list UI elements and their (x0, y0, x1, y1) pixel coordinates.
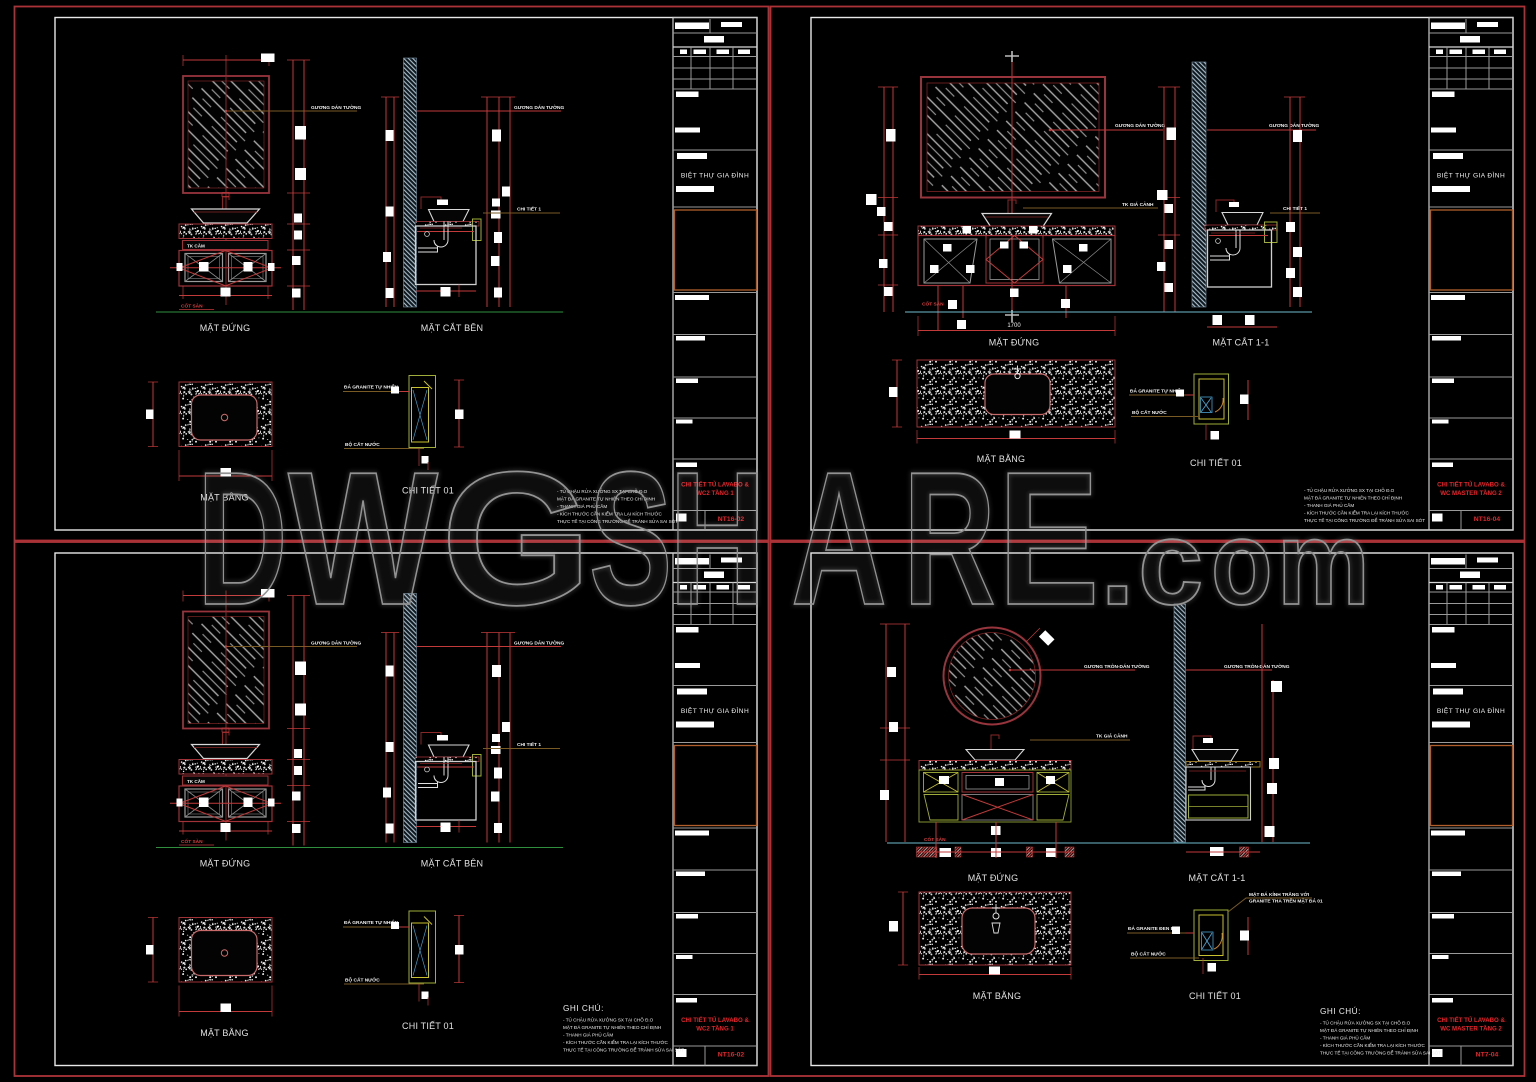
svg-text:- TỦ CHẬU RỬA XƯỞNG SX TẠI CHỖ: - TỦ CHẬU RỬA XƯỞNG SX TẠI CHỖ Đ.O (1304, 487, 1395, 493)
svg-text:NT16-02: NT16-02 (718, 1052, 745, 1059)
svg-text:- THANH GIÁ PHỦ CẮM: - THANH GIÁ PHỦ CẮM (1320, 1034, 1370, 1041)
svg-text:- TỦ CHẬU RỬA XƯỞNG SX TẠI CHỖ: - TỦ CHẬU RỬA XƯỞNG SX TẠI CHỖ Đ.O (563, 1017, 654, 1023)
svg-text:NT16-04: NT16-04 (1474, 516, 1501, 523)
svg-text:- TỦ CHẬU RỬA XƯỞNG SX TẠI CHỖ: - TỦ CHẬU RỬA XƯỞNG SX TẠI CHỖ Đ.O (1320, 1020, 1411, 1026)
svg-text:MẶT BẰNG: MẶT BẰNG (973, 991, 1021, 1001)
svg-text:THỰC TẾ TẠI CÔNG TRƯỜNG ĐỂ TRÁ: THỰC TẾ TẠI CÔNG TRƯỜNG ĐỂ TRÁNH SỬA SAI… (563, 1047, 684, 1053)
svg-text:TK GIÁ CẢNH: TK GIÁ CẢNH (1122, 201, 1154, 208)
svg-text:MẶT ĐÁ GRANITE TỰ NHIÊN THEO C: MẶT ĐÁ GRANITE TỰ NHIÊN THEO CHỈ ĐỊNH (1320, 1026, 1418, 1033)
svg-text:MẶT ĐÁ GRANITE TỰ NHIÊN THEO C: MẶT ĐÁ GRANITE TỰ NHIÊN THEO CHỈ ĐỊNH (563, 1023, 661, 1030)
svg-text:MẶT ĐỨNG: MẶT ĐỨNG (989, 338, 1040, 348)
svg-text:TK GIÁ CẢNH: TK GIÁ CẢNH (1096, 733, 1128, 740)
svg-text:WC MASTER TẦNG 2: WC MASTER TẦNG 2 (1440, 1026, 1502, 1033)
svg-text:MẶT CẮT 1-1: MẶT CẮT 1-1 (1189, 873, 1246, 883)
svg-text:- KÍCH THƯỚC CẦN KIỂM TRA LẠI: - KÍCH THƯỚC CẦN KIỂM TRA LẠI KÍCH THƯỚC (563, 1039, 668, 1045)
svg-text:THỰC TẾ TẠI CÔNG TRƯỜNG ĐỂ TRÁ: THỰC TẾ TẠI CÔNG TRƯỜNG ĐỂ TRÁNH SỬA SAI… (1320, 1050, 1441, 1056)
svg-text:CỐT SÀN: CỐT SÀN (924, 836, 946, 843)
svg-text:CỐT SÀN: CỐT SÀN (922, 301, 944, 308)
svg-text:MẶT CẮT 1-1: MẶT CẮT 1-1 (1213, 338, 1270, 348)
svg-text:CHI TIẾT TỦ LAVABO &: CHI TIẾT TỦ LAVABO & (1437, 1017, 1505, 1024)
svg-text:- THANH GIÁ PHỦ CẮM: - THANH GIÁ PHỦ CẮM (563, 1031, 613, 1038)
svg-text:GHI CHÚ:: GHI CHÚ: (563, 1003, 604, 1013)
svg-text:1700: 1700 (1007, 323, 1021, 329)
svg-text:CHI TIẾT TỦ LAVABO &: CHI TIẾT TỦ LAVABO & (681, 1017, 749, 1024)
svg-text:WC MASTER TẦNG 2: WC MASTER TẦNG 2 (1440, 490, 1502, 497)
svg-text:CHI TIẾT 01: CHI TIẾT 01 (1189, 991, 1241, 1001)
svg-text:CHI TIẾT 01: CHI TIẾT 01 (1190, 458, 1242, 468)
svg-text:NT7-04: NT7-04 (1476, 1052, 1499, 1059)
svg-text:CHI TIẾT TỦ LAVABO &: CHI TIẾT TỦ LAVABO & (1437, 482, 1505, 489)
svg-text:GHI CHÚ:: GHI CHÚ: (1320, 1006, 1361, 1016)
svg-text:WC2 TẦNG 1: WC2 TẦNG 1 (696, 1026, 734, 1033)
svg-text:- KÍCH THƯỚC CẦN KIỂM TRA LẠI: - KÍCH THƯỚC CẦN KIỂM TRA LẠI KÍCH THƯỚC (1320, 1042, 1425, 1048)
svg-text:CHI TIẾT 1: CHI TIẾT 1 (1283, 205, 1307, 212)
svg-text:ĐÁ GRANITE ĐEN B.O: ĐÁ GRANITE ĐEN B.O (1128, 925, 1179, 932)
svg-text:MẶT ĐỨNG: MẶT ĐỨNG (968, 873, 1019, 883)
